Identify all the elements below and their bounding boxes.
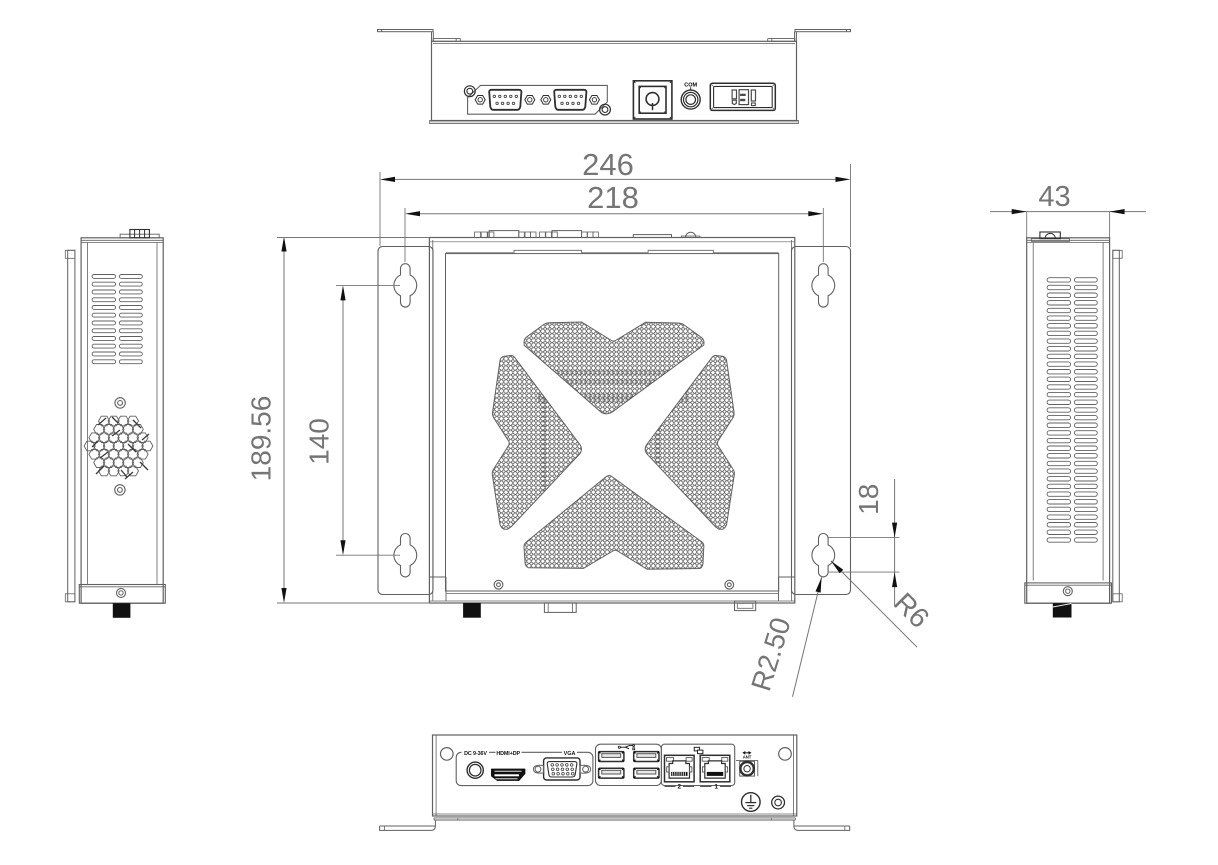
svg-text:R2.50: R2.50 [745, 614, 796, 695]
svg-text:43: 43 [1038, 181, 1070, 213]
svg-text:2: 2 [677, 784, 681, 791]
svg-text:1: 1 [714, 784, 718, 791]
svg-text:R6: R6 [888, 587, 935, 634]
svg-text:VGA: VGA [564, 751, 576, 757]
svg-text:HDMI+DP: HDMI+DP [496, 751, 520, 757]
svg-text:246: 246 [582, 147, 634, 182]
svg-text:18: 18 [853, 484, 884, 515]
svg-text:189.56: 189.56 [246, 396, 277, 482]
svg-text:DC 9-36V: DC 9-36V [464, 751, 487, 757]
svg-text:ANT: ANT [743, 754, 752, 759]
svg-text:140: 140 [304, 418, 335, 465]
svg-text:218: 218 [587, 180, 639, 215]
